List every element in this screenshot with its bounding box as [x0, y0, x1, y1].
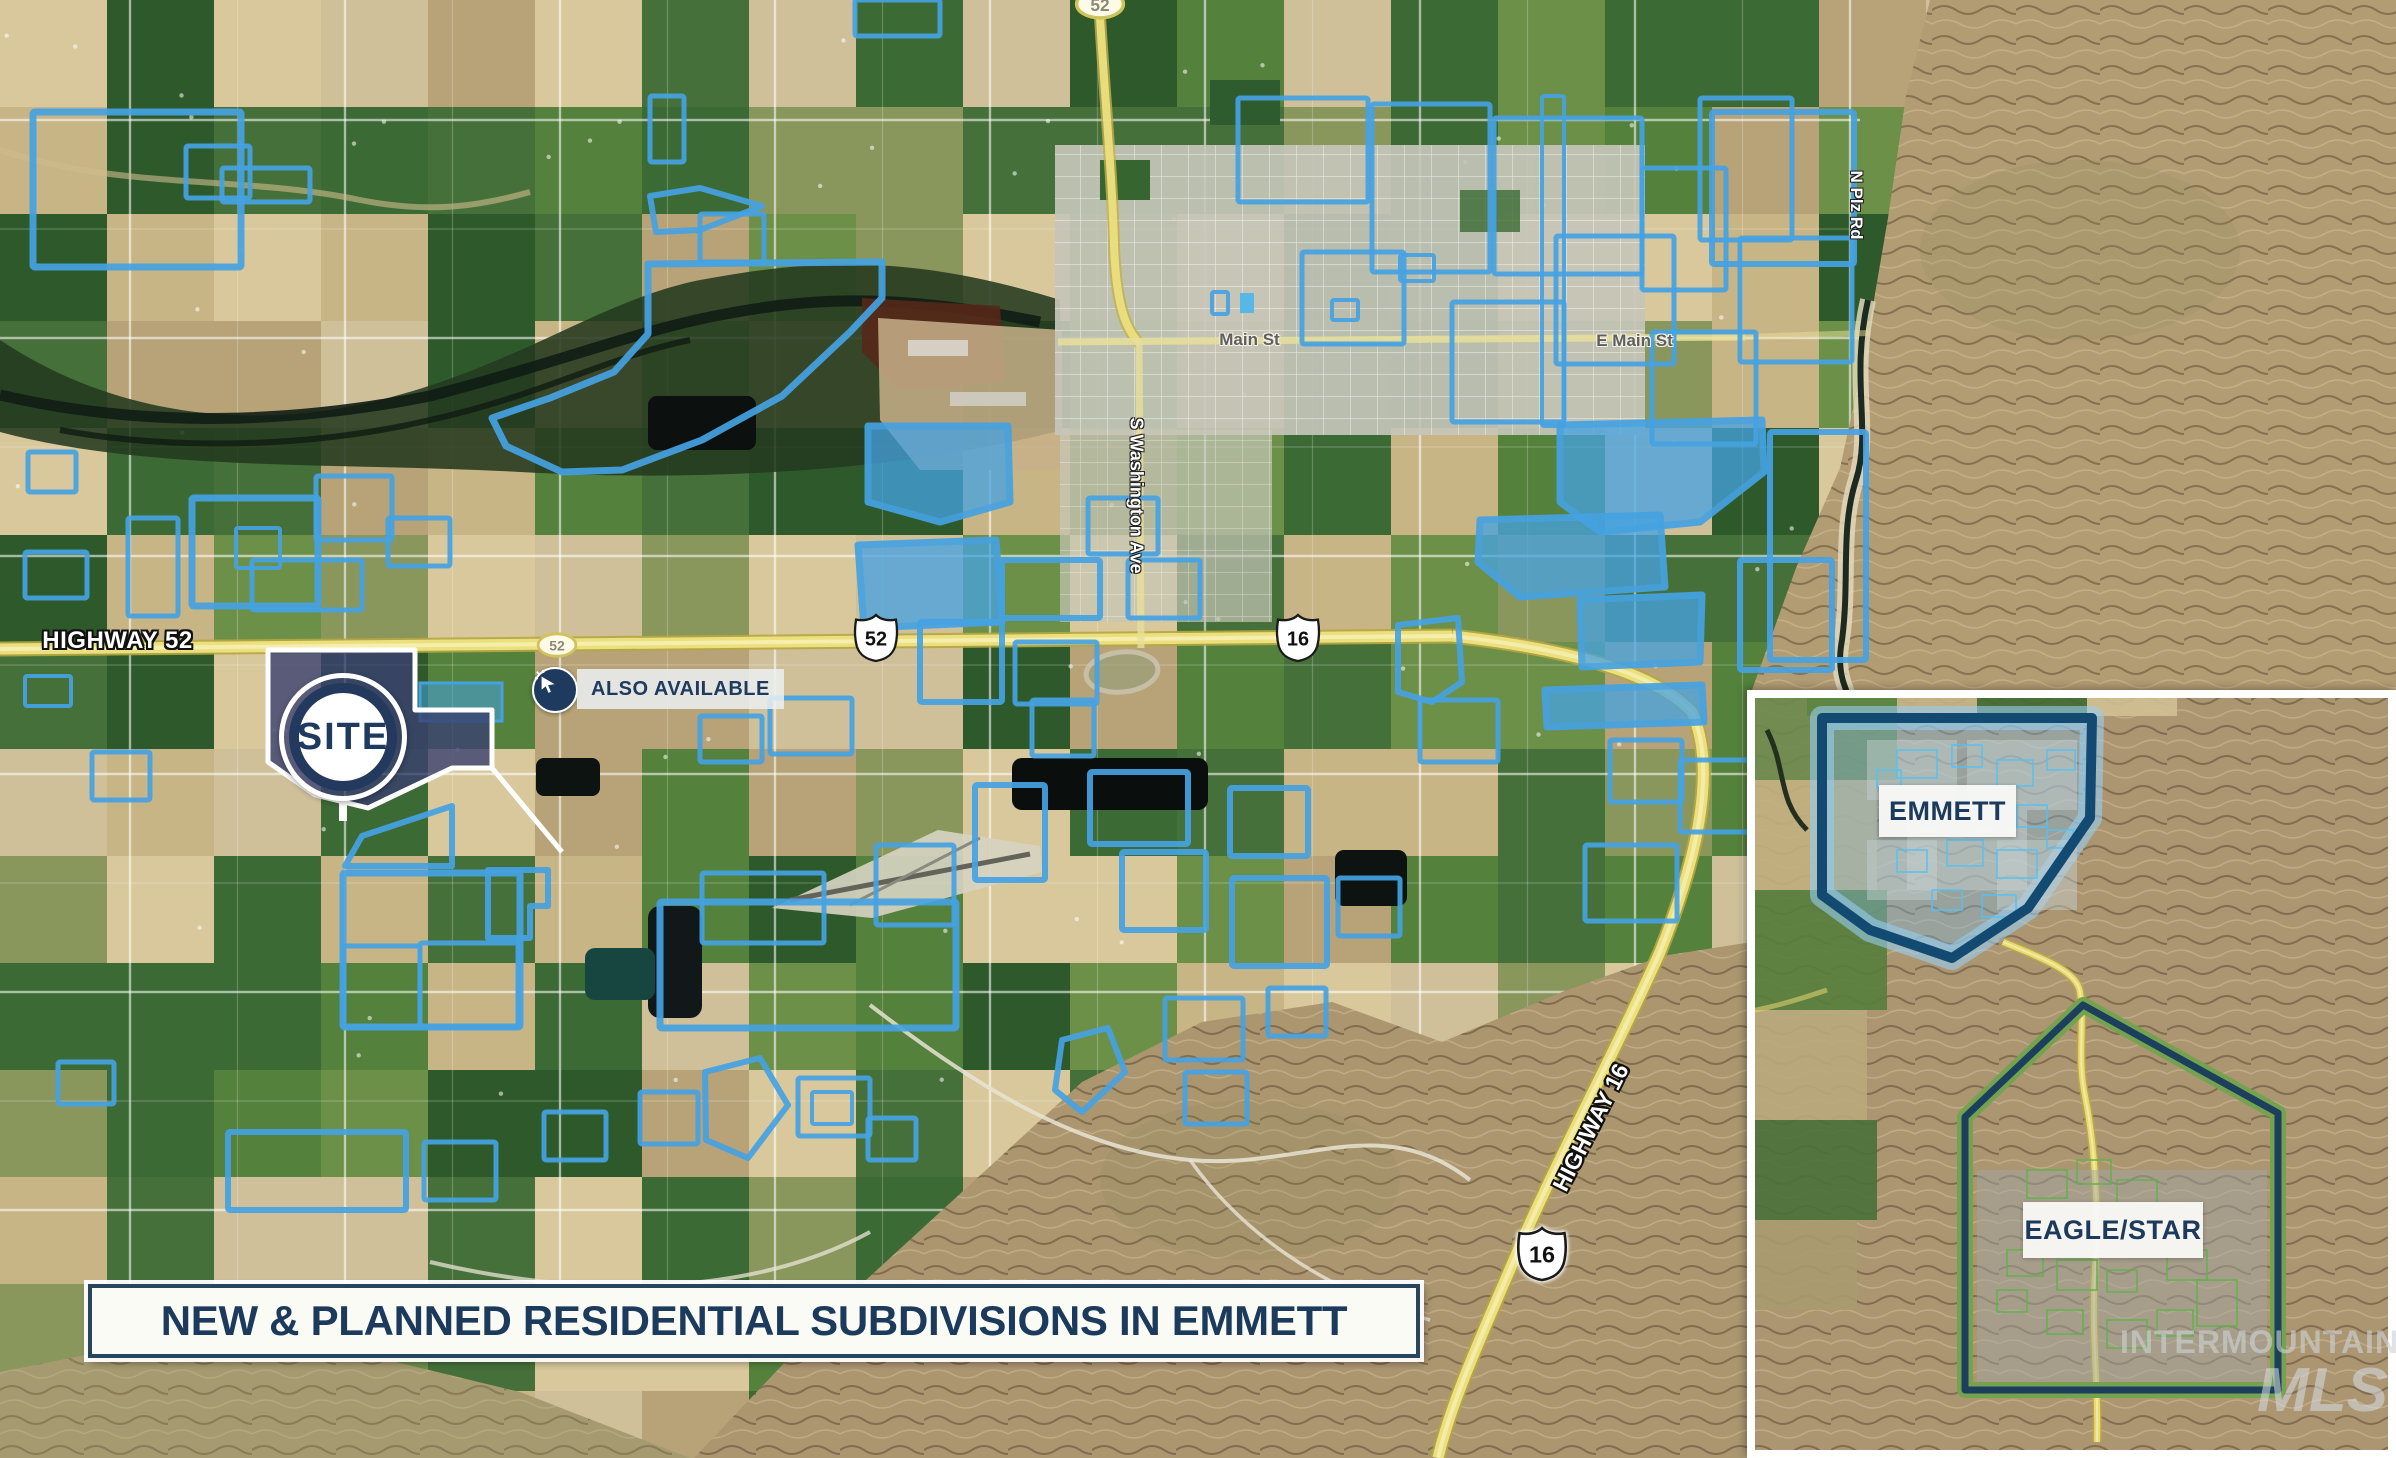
site-marker: SITE — [279, 673, 407, 801]
svg-text:16: 16 — [1287, 629, 1309, 651]
route-52-oval-shield: 52 — [536, 630, 578, 660]
us-16-shield: 16 — [1275, 613, 1321, 663]
us-16-shield-south: 16 — [1516, 1225, 1568, 1283]
watermark-mls: MLS — [2120, 1360, 2388, 1422]
title-banner: NEW & PLANNED RESIDENTIAL SUBDIVISIONS I… — [88, 1284, 1420, 1358]
us-52-shield: 52 — [853, 613, 899, 663]
also-available-badge — [532, 667, 578, 713]
svg-text:16: 16 — [1529, 1242, 1555, 1268]
s-washington-ave-label: S Washington Ave — [1126, 406, 1147, 586]
site-marker-stem — [339, 799, 347, 821]
route-52-oval-shield-top: 52 — [1074, 0, 1126, 22]
svg-text:52: 52 — [549, 638, 565, 654]
watermark-intermountain: INTERMOUNTAIN — [2120, 1326, 2388, 1358]
main-st-label: Main St — [1197, 330, 1302, 350]
n-plz-rd-label: N Plz Rd — [1846, 150, 1866, 260]
mls-watermark: INTERMOUNTAIN MLS — [2120, 1326, 2388, 1422]
flyer-map: HIGHWAY 52 HIGHWAY 16 Main St E Main St … — [0, 0, 2396, 1458]
svg-text:52: 52 — [865, 629, 887, 651]
highway-52-label: HIGHWAY 52 — [30, 627, 205, 655]
svg-text:52: 52 — [1090, 0, 1109, 15]
page-title: NEW & PLANNED RESIDENTIAL SUBDIVISIONS I… — [161, 1297, 1348, 1345]
inset-eagle-star-label: EAGLE/STAR — [2023, 1202, 2203, 1258]
inset-emmett-label: EMMETT — [1879, 785, 2016, 837]
cursor-click-icon — [534, 669, 560, 695]
also-available-label: ALSO AVAILABLE — [577, 669, 784, 709]
e-main-st-label: E Main St — [1577, 331, 1692, 351]
site-label: SITE — [297, 716, 389, 759]
